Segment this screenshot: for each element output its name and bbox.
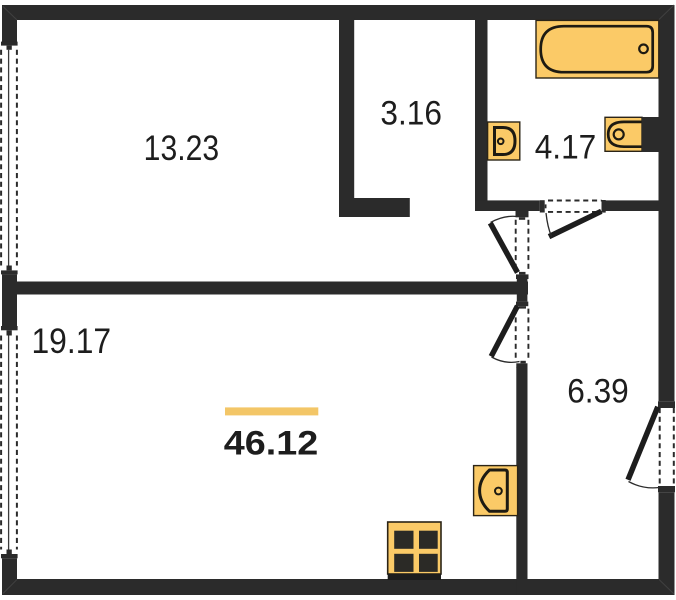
svg-text:19.17: 19.17 [31,323,111,362]
svg-text:13.23: 13.23 [144,128,219,168]
svg-text:3.16: 3.16 [380,93,442,131]
svg-text:46.12: 46.12 [224,423,318,462]
svg-text:6.39: 6.39 [567,371,629,409]
svg-text:4.17: 4.17 [535,127,597,165]
